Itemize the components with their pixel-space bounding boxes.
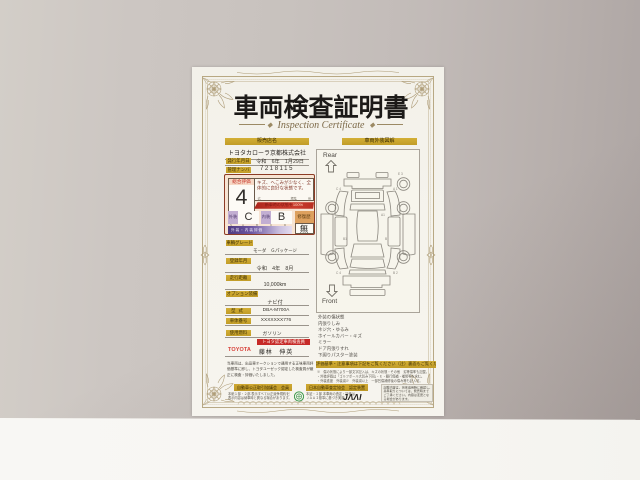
svg-text:B 2: B 2 bbox=[393, 271, 398, 275]
svg-text:A1: A1 bbox=[381, 213, 385, 217]
svg-text:B1: B1 bbox=[343, 237, 347, 241]
svg-text:E 3: E 3 bbox=[398, 172, 403, 176]
svg-text:C 4: C 4 bbox=[336, 187, 341, 191]
svg-text:C 4: C 4 bbox=[336, 271, 341, 275]
svg-text:A 1: A 1 bbox=[393, 187, 398, 191]
svg-text:B: B bbox=[385, 237, 387, 241]
